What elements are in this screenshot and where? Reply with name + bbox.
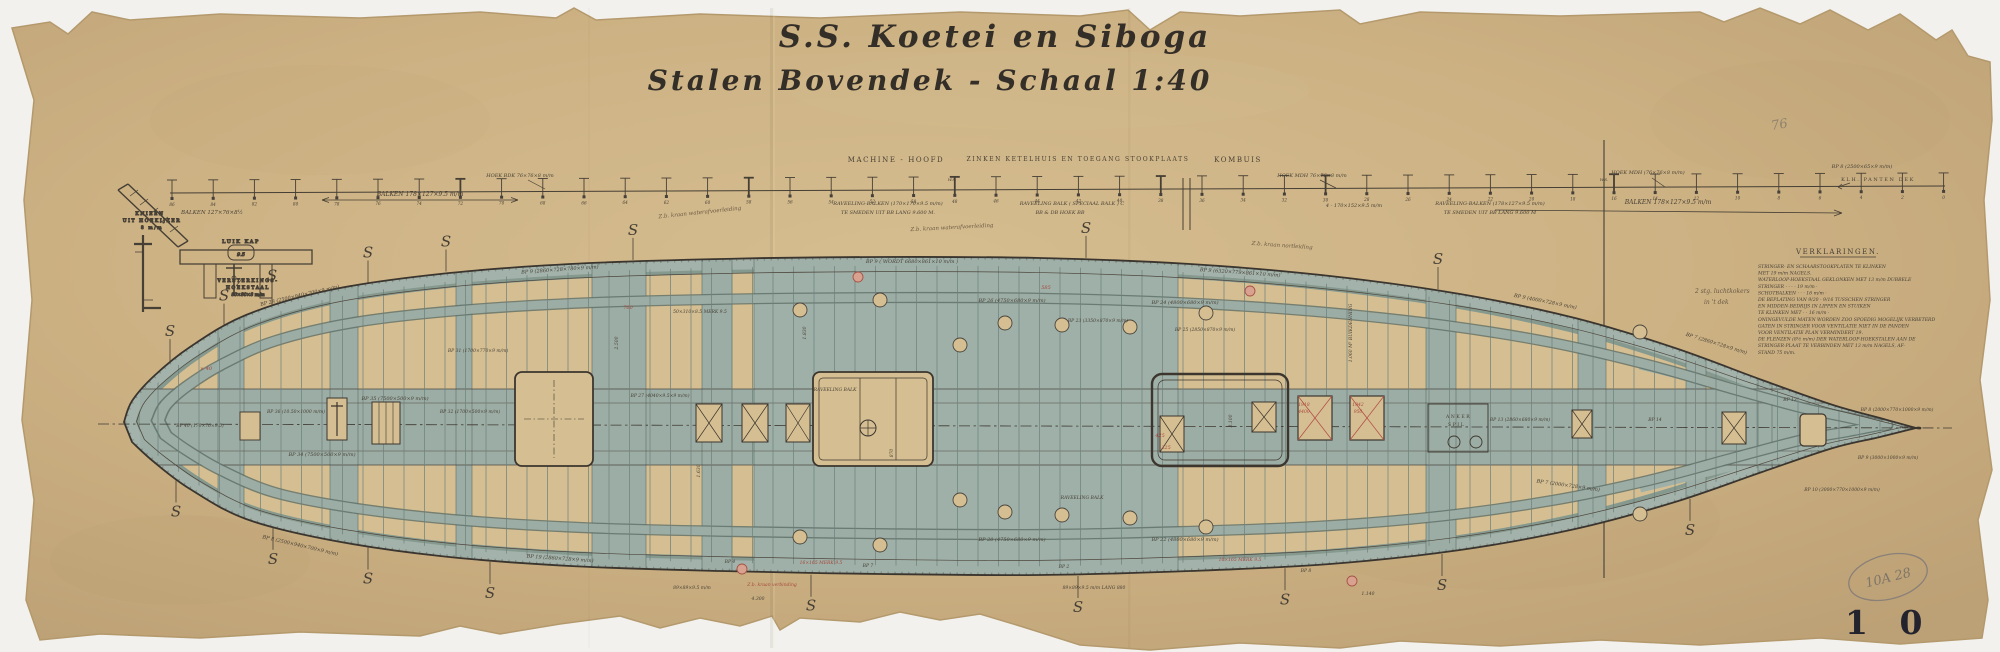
red-annotation: 325 bbox=[1161, 445, 1171, 451]
knee-label-3: 8 m/m bbox=[141, 225, 163, 231]
annotation-text: 89×89×9.5 m/m bbox=[673, 585, 711, 591]
annotation-text: BP 9 ( WORDT 6680×861×10 m/m ) bbox=[865, 258, 958, 265]
annotation-text: BP 13 (2860×680×9 m/m) bbox=[1489, 416, 1551, 423]
deck-plan-svg: S.S. Koetei en Siboga Stalen Bovendek - … bbox=[0, 0, 2000, 652]
frame-number: 48 bbox=[951, 199, 958, 204]
frame-number: 64 bbox=[623, 200, 629, 205]
section-mark: S bbox=[628, 221, 638, 239]
scupper-mark bbox=[737, 564, 747, 574]
verklaringen-line: DE BEPLATING VAN 9/20 - 9/16 TUSSCHEN ST… bbox=[1757, 297, 1891, 303]
red-annotation: 760 bbox=[623, 305, 633, 311]
manhole bbox=[953, 338, 967, 352]
red-annotation: Z.b. kraan verbinding bbox=[746, 582, 797, 588]
side-note-line-1: 2 stg. luchtkokers bbox=[1694, 288, 1750, 295]
section-mark: S bbox=[268, 550, 278, 568]
frame-number: 62 bbox=[664, 200, 670, 205]
section-mark: S bbox=[165, 322, 175, 340]
manhole bbox=[998, 505, 1012, 519]
frame-number: 2 bbox=[1900, 195, 1904, 200]
manhole bbox=[873, 538, 887, 552]
verklaringen-line: STAND 75 m/m. bbox=[1758, 350, 1796, 356]
annotation-text: BP 26 (4750×680×9 m/m) bbox=[977, 297, 1045, 304]
frame-number: 38 bbox=[1158, 198, 1164, 203]
red-annotation: 1942 bbox=[1352, 402, 1364, 408]
section-mark: S bbox=[1073, 598, 1083, 616]
red-annotation: 16×165 MERK 9.5 bbox=[1219, 557, 1262, 563]
annotation-text: BP 40 (170×76×9.5) bbox=[175, 422, 224, 429]
frame-number: 84 bbox=[211, 202, 217, 207]
dimension-label: RAVEELING-BALKEN (178×127×9.5 m/m) bbox=[1434, 200, 1545, 207]
manhole bbox=[1199, 306, 1213, 320]
manhole bbox=[1055, 508, 1069, 522]
verklaringen-line: SCHOTBALKEN · · · 16 m/m · bbox=[1758, 290, 1827, 296]
verklaringen-line: VOOR VENTILATIE PLAN VERMINDERT 19. bbox=[1758, 330, 1863, 336]
engine-casing bbox=[813, 372, 933, 466]
annotation-text: BP 8 (2000×770×1000×9 m/m) bbox=[1860, 406, 1934, 413]
annotation-text: 2.500 bbox=[614, 336, 620, 350]
frame-number: 16 bbox=[1611, 196, 1617, 201]
page-number-stamp: 1 0 bbox=[1845, 603, 1932, 642]
annotation-text: BP 24 (4800×680×9 m/m) bbox=[1150, 299, 1218, 306]
frame-number: 4 bbox=[1859, 195, 1863, 200]
red-annotation: 4400 bbox=[1297, 409, 1310, 415]
dimension-label: TE SMEDEN UIT BB LANG 9.600 M bbox=[1444, 210, 1537, 216]
dimension-label: BP 8 (2500×65×9 m/m) bbox=[1831, 163, 1893, 170]
section-mark: S bbox=[171, 503, 181, 521]
dimension-label: BB & DB HOEK BB bbox=[1034, 210, 1084, 216]
annotation-text: 870 bbox=[889, 449, 895, 458]
section-mark: S bbox=[1280, 590, 1290, 608]
dimension-label: HOEK BDK 76×76×8 m/m bbox=[485, 173, 554, 179]
frame-number: 6 bbox=[1819, 195, 1822, 200]
annotation-text: BP 27 (4040×9.5×9 m/m) bbox=[630, 392, 690, 399]
dimension-label: TE SMEDEN UIT BB LANG 9.600 M. bbox=[841, 210, 935, 216]
luik-kap-label: LUIK KAP bbox=[222, 239, 260, 245]
verklaringen-line: WATERLOOP-HOEKSTAAL GEKLONKEN MET 13 m/m… bbox=[1758, 277, 1912, 283]
frame-number: 18 bbox=[1570, 196, 1576, 201]
frame-number: 10 bbox=[1735, 196, 1741, 201]
annotation-text: RAVEELING BALK bbox=[813, 387, 858, 393]
annotation-text: BP 13 bbox=[1782, 397, 1797, 403]
verklaringen-line: ONINGEVULDE MATEN WORDEN ZOO SPOEDIG MOG… bbox=[1758, 317, 1936, 323]
verklaringen-line: GATEN IN STRINGER VOOR VENTILATIE NIET I… bbox=[1758, 323, 1910, 329]
dimension-label: MACHINE - HOOFD bbox=[848, 156, 945, 164]
annotation-text: 89×89×9.5 m/m LANG 880 bbox=[1063, 585, 1126, 591]
section-mark: S bbox=[363, 570, 373, 588]
cross-band bbox=[456, 250, 472, 585]
dimension-label: BALKEN 127×76×8½ bbox=[180, 209, 243, 216]
annotation-text: BP 35 (7500×500×9 m/m) bbox=[360, 395, 428, 402]
frame-number: 68 bbox=[540, 201, 546, 206]
section-mark: S bbox=[267, 266, 277, 284]
frame-number: 76 bbox=[375, 201, 381, 206]
annotation-text: BP 14 bbox=[1647, 417, 1662, 423]
verklaringen-line: MET 19 m/m NAGELS. bbox=[1757, 271, 1812, 277]
frame-number: 26 bbox=[1404, 197, 1411, 202]
frame-number: 36 bbox=[1199, 198, 1205, 203]
frame-number: 28 bbox=[1363, 197, 1370, 202]
frame-number: 32 bbox=[1282, 198, 1288, 203]
annotation-text: 1.140 bbox=[1362, 591, 1375, 597]
dimension-label: ZINKEN KETELHUIS EN TOEGANG STOOKPLAATS bbox=[967, 156, 1190, 163]
section-mark: S bbox=[219, 287, 229, 305]
dimension-label: BALKEN 178×127×9.5 m/m bbox=[376, 191, 464, 198]
pencil-scribble: 76 bbox=[1770, 116, 1789, 134]
frame-number: 58 bbox=[746, 200, 752, 205]
verklaringen-heading: VERKLARINGEN. bbox=[1795, 248, 1880, 256]
annotation-text: 50×310×8.5 MERK 9.5 bbox=[673, 309, 727, 315]
dimension-label: KLH. PANTEN DEK bbox=[1841, 177, 1915, 183]
annotation-text: BP 34 (7500×500×9 m/m) bbox=[287, 451, 355, 458]
dimension-label: BALKEN 178×127×9.5 m/m bbox=[1624, 199, 1712, 206]
annotation-text: BP 4 bbox=[724, 559, 736, 565]
verst-label-2: HOEKSTAAL bbox=[226, 285, 270, 291]
title-line-2: Stalen Bovendek - Schaal 1:40 bbox=[648, 64, 1213, 97]
manhole bbox=[998, 316, 1012, 330]
knee-label-2: UIT HOEKIJZER bbox=[123, 218, 181, 224]
dimension-label: W.S. bbox=[948, 177, 957, 182]
dimension-label: HOEK MDH 76×76×8 m/m bbox=[1276, 173, 1347, 179]
verklaringen-line: STRINGER-PLAAT TE VERBINDEN MET 13 m/m N… bbox=[1758, 343, 1906, 349]
annotation-text: BP 25 (2850×870×9 m/m) bbox=[1174, 326, 1236, 333]
scupper-mark bbox=[853, 272, 863, 282]
annotation-text: BP 22 (4800×680×9 m/m) bbox=[1150, 536, 1218, 543]
annotation-text: BP 9 (3000×1000×9 m/m) bbox=[1857, 454, 1919, 461]
verklaringen-line: TE KLINKEN MET · · 16 m/m · bbox=[1758, 310, 1830, 316]
frame-number: 70 bbox=[499, 201, 505, 206]
annotation-text: BP 32 (1700×500×9 m/m) bbox=[439, 408, 501, 415]
frame-number: 80 bbox=[293, 202, 299, 207]
annotation-text: BP 8 bbox=[1300, 568, 1312, 574]
anker-label: ANKER bbox=[1445, 414, 1471, 420]
verst-label-3: 80×80×8 m/m bbox=[231, 292, 264, 298]
frame-number: 66 bbox=[581, 200, 587, 205]
manhole bbox=[1199, 520, 1213, 534]
side-note-line-2: in 't dek bbox=[1704, 299, 1729, 306]
dimension-label: W.S. bbox=[1600, 177, 1609, 182]
dimension-label: 4 - 170×152×9.5 m/m bbox=[1325, 203, 1382, 209]
annotation-text: 1.830 bbox=[802, 326, 808, 339]
red-annotation: 425 bbox=[1154, 433, 1165, 439]
annotation-text: 3.100 bbox=[1228, 414, 1234, 427]
dimension-label: KOMBUIS bbox=[1214, 156, 1262, 164]
red-annotation: 950 bbox=[1354, 409, 1363, 415]
section-mark: S bbox=[363, 243, 373, 261]
annotation-text: BP 31 (1700×770×9 m/m) bbox=[447, 347, 509, 354]
annotation-text: BP 2 bbox=[1058, 564, 1070, 570]
manhole bbox=[793, 530, 807, 544]
section-mark: S bbox=[806, 597, 816, 615]
knee-label-1: KNIEËN bbox=[135, 210, 164, 217]
frame-number: 46 bbox=[992, 199, 999, 204]
capstan bbox=[860, 420, 876, 436]
title-line-1: S.S. Koetei en Siboga bbox=[779, 19, 1212, 55]
verklaringen-line: STRINGER · · · · 19 m/m · bbox=[1758, 284, 1818, 290]
annotation-text: BP 10 (3000×770×1000×9 m/m) bbox=[1803, 486, 1880, 493]
manhole bbox=[953, 493, 967, 507]
frame-number: 72 bbox=[458, 201, 464, 206]
frame-number: 0 bbox=[1942, 195, 1945, 200]
section-mark: S bbox=[1433, 250, 1443, 268]
red-annotation: 16×165 MERK 9.5 bbox=[800, 560, 843, 566]
red-annotation: 1918 bbox=[1298, 402, 1310, 408]
manhole bbox=[1633, 507, 1647, 521]
annotation-text: 4.300 bbox=[751, 596, 765, 602]
manhole bbox=[793, 303, 807, 317]
frame-number: 34 bbox=[1241, 198, 1247, 203]
frame-number: 86 bbox=[169, 202, 175, 207]
annotation-text: RAVEELING BALK bbox=[1060, 495, 1105, 501]
frame-number: 60 bbox=[705, 200, 711, 205]
red-annotation: 585 bbox=[1041, 285, 1051, 291]
dimension-label: RAVEELING-BALKEN (170×170×9.5 m/m) bbox=[832, 200, 943, 207]
frame-number: 8 bbox=[1777, 196, 1780, 201]
verklaringen-line: EN MIDDEN-BEDRIJS IN LIPPEN EN STUIKEN bbox=[1757, 304, 1871, 310]
frame-number: 30 bbox=[1323, 197, 1329, 202]
annotation-text: BP 7 bbox=[862, 563, 874, 569]
frame-number: 56 bbox=[787, 200, 793, 205]
frame-number: 78 bbox=[334, 201, 340, 206]
scupper-mark bbox=[1347, 576, 1357, 586]
annotation-text: 1.060 M³ BUIKDENNING bbox=[1348, 303, 1354, 362]
luik-dim-label: 9.5 bbox=[237, 252, 245, 258]
annotation-text: BP 20 (4750×680×9 m/m) bbox=[977, 536, 1045, 543]
annotation-text: 1.630 bbox=[696, 464, 702, 477]
spil-label: SPIL bbox=[1448, 422, 1465, 428]
verklaringen-line: DE FLENZEN (8½ m/m) DER WATERLOOP-HOEKST… bbox=[1757, 336, 1916, 343]
dimension-label: HOEK MDH (76×76×8 m/m) bbox=[1610, 169, 1685, 176]
red-annotation: × 40 bbox=[200, 366, 213, 372]
annotation-text: BP 36 (10.50×1000 m/m) bbox=[266, 408, 325, 415]
section-mark: S bbox=[485, 584, 495, 602]
section-mark: S bbox=[1081, 219, 1091, 237]
section-mark: S bbox=[1685, 521, 1695, 539]
frame-number: 82 bbox=[252, 202, 258, 207]
dimension-label: RAVEELING BALK ( SPECIAAL BALK ) C bbox=[1019, 200, 1125, 207]
manhole bbox=[1633, 325, 1647, 339]
section-mark: S bbox=[1437, 576, 1447, 594]
section-mark: S bbox=[441, 233, 451, 251]
manhole bbox=[873, 293, 887, 307]
scupper-mark bbox=[1245, 286, 1255, 296]
manhole bbox=[1123, 511, 1137, 525]
scanned-ship-deck-drawing: S.S. Koetei en Siboga Stalen Bovendek - … bbox=[0, 0, 2000, 652]
verklaringen-line: STRINGER- EN SCHAARSTOOKPLATEN TE KLINKE… bbox=[1758, 264, 1887, 270]
annotation-text: BP 23 (3350×870×9 m/m) bbox=[1067, 317, 1129, 324]
frame-number: 74 bbox=[417, 201, 423, 206]
centerline-small-hatches bbox=[696, 404, 810, 442]
